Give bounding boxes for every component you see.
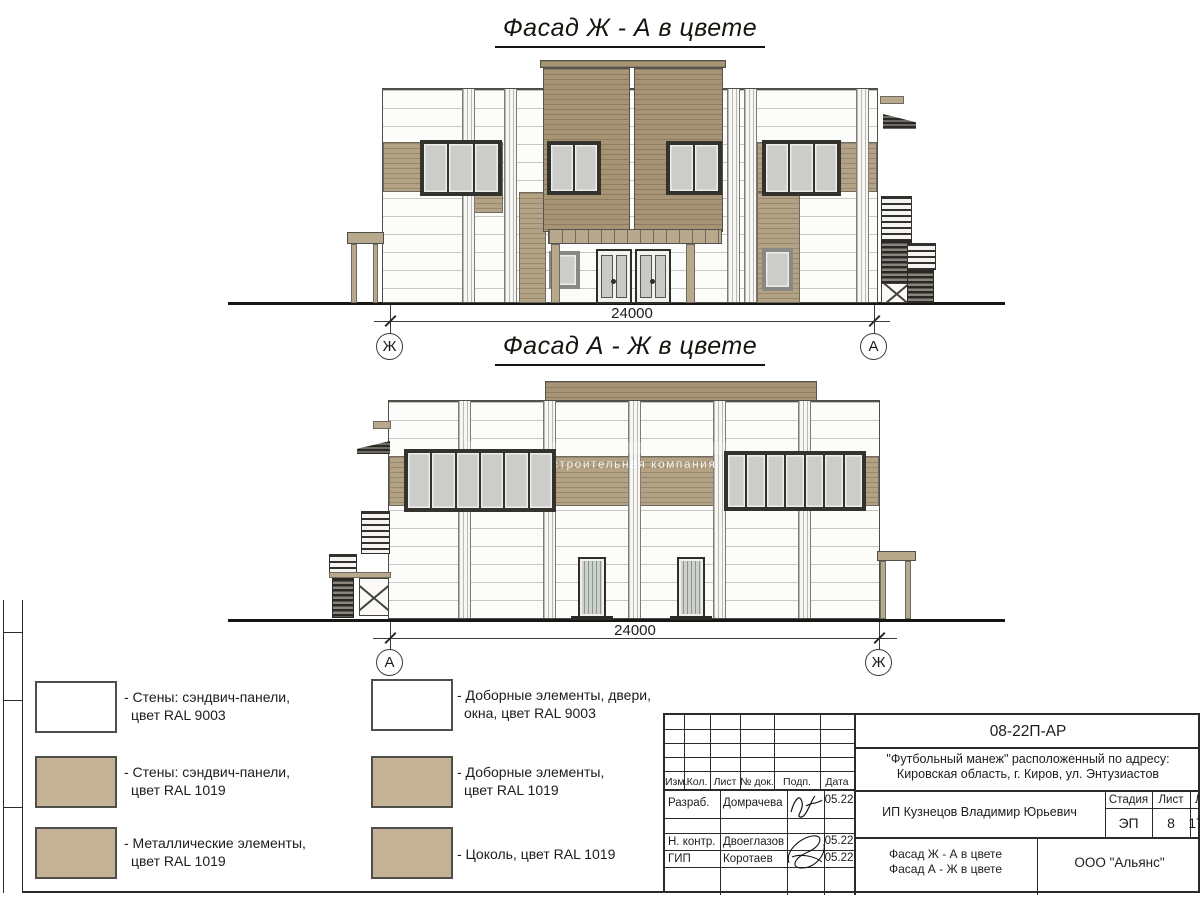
door-leaf: [640, 255, 652, 298]
tb-role: Н. контр.: [668, 836, 715, 848]
roof-ledge: [373, 421, 391, 429]
window-pane: [766, 252, 789, 287]
axis-marker: А: [860, 333, 887, 360]
legend-label: - Стены: сэндвич-панели, цвет RAL 9003: [124, 688, 290, 725]
legend-label: - Стены: сэндвич-панели, цвет RAL 1019: [124, 763, 290, 800]
legend-label-line: - Металлические элементы,: [124, 834, 306, 852]
window-pane: [457, 453, 479, 508]
axis-marker: Ж: [865, 649, 892, 676]
door-leaf: [616, 255, 628, 298]
legend-swatch-ral1019: [35, 756, 117, 808]
facade1-title-text: Фасад Ж - А в цвете: [495, 14, 765, 48]
sheet-frame-line: [3, 600, 4, 893]
tb-col-header: Дата: [820, 776, 854, 788]
sheet-frame-line: [22, 600, 23, 893]
canopy-post: [905, 561, 911, 619]
dimension-label: 24000: [603, 622, 667, 639]
legend-swatch-ral9003: [371, 679, 453, 731]
window-pane: [815, 144, 837, 192]
legend-swatch-ral1019: [371, 827, 453, 879]
small-window: [762, 248, 793, 291]
legend-label-line: - Стены: сэндвич-панели,: [124, 688, 290, 706]
side-canopy-roof: [347, 232, 384, 244]
stair-flight: [332, 578, 354, 618]
legend-swatch-ral1019: [35, 827, 117, 879]
drawing-sheet: Фасад Ж - А в цвете: [0, 0, 1200, 900]
entrance-canopy-band: [548, 229, 722, 244]
stair-canopy: [883, 114, 916, 129]
window-pane: [747, 455, 764, 507]
window-pane: [449, 144, 472, 192]
title-block-line: [854, 747, 1200, 749]
legend-label-line: цвет RAL 9003: [124, 706, 290, 724]
window-pane: [670, 145, 693, 191]
panel-joint-strip: [628, 401, 641, 618]
tb-project-line2: Кировская область, г. Киров, ул. Энтузиа…: [854, 767, 1200, 781]
door-threshold: [571, 616, 613, 620]
signature: [783, 829, 827, 871]
single-door: [677, 557, 705, 618]
title-block-line: [665, 729, 854, 730]
window-pane: [786, 455, 803, 507]
window-pane: [806, 455, 823, 507]
panel-joint-strip: [727, 89, 740, 302]
facade1-parapet-cap: [540, 60, 726, 68]
entrance-column: [551, 244, 560, 303]
window-pane: [825, 455, 842, 507]
single-door: [578, 557, 606, 618]
tb-role: ГИП: [668, 853, 691, 865]
window-pane: [695, 145, 718, 191]
legend-label: - Цоколь, цвет RAL 1019: [457, 845, 615, 863]
tb-stage-label: Стадия: [1105, 794, 1152, 806]
tb-col-header: Кол.: [684, 776, 710, 788]
window-pane: [575, 145, 597, 191]
entrance-double-door: [635, 249, 671, 304]
watermark-wordmark: [552, 442, 737, 454]
axis-marker: А: [376, 649, 403, 676]
tb-sheets-value: 17: [1181, 815, 1200, 831]
facade1-tan-pilaster-left: [519, 192, 546, 303]
dimension-label: 24000: [600, 305, 664, 322]
window-ribbon: [724, 451, 866, 511]
door-leaf: [601, 255, 613, 298]
title-block-line: [665, 789, 854, 791]
window: [666, 141, 722, 195]
door-leaf: [655, 255, 667, 298]
sheet-frame-line: [3, 807, 22, 808]
window-pane: [790, 144, 812, 192]
legend-swatch-ral1019: [371, 756, 453, 808]
legend-label-line: цвет RAL 1019: [457, 781, 604, 799]
side-canopy-roof: [877, 551, 916, 561]
title-block-line: [854, 837, 1200, 839]
window: [420, 140, 502, 196]
tb-sheet-label: Лист: [1152, 794, 1190, 806]
window-pane: [481, 453, 503, 508]
sheet-frame-line: [3, 700, 22, 701]
tb-sheets-label: Листов: [1195, 794, 1200, 806]
legend-label: - Металлические элементы, цвет RAL 1019: [124, 834, 306, 871]
sheet-frame-line: [3, 632, 22, 633]
tb-col-header: Подп.: [774, 776, 820, 788]
tb-date: 05.22: [824, 852, 854, 864]
title-block-line: [1105, 808, 1200, 809]
legend-label: - Доборные элементы, двери, окна, цвет R…: [457, 686, 651, 723]
window-pane: [551, 145, 573, 191]
facade2-title: Фасад А - Ж в цвете: [420, 332, 840, 366]
canopy-post: [373, 244, 378, 303]
tb-client: ИП Кузнецов Владимир Юрьевич: [854, 805, 1105, 819]
tb-date: 05.22: [824, 794, 854, 806]
tb-col-header: № док.: [740, 776, 774, 788]
window: [762, 140, 841, 196]
facade2-title-text: Фасад А - Ж в цвете: [495, 332, 765, 366]
legend-label-line: - Доборные элементы,: [457, 763, 604, 781]
window-pane: [505, 453, 527, 508]
tb-sheet-title-line1: Фасад Ж - А в цвете: [854, 847, 1037, 861]
tb-role: Разраб.: [668, 797, 709, 809]
tb-sheet-title-line2: Фасад А - Ж в цвете: [854, 862, 1037, 876]
stair-railing: [361, 511, 390, 554]
tb-col-header: Изм.: [665, 776, 684, 788]
panel-joint-strip: [744, 89, 757, 302]
stair-railing: [881, 196, 912, 240]
title-block: Изм. Кол. Лист № док. Подп. Дата Разраб.…: [663, 713, 1200, 893]
watermark-text: строительная компания: [552, 457, 752, 471]
title-block-line: [665, 818, 854, 819]
legend-swatch-ral9003: [35, 681, 117, 733]
window-pane: [728, 455, 745, 507]
panel-joint-strip: [856, 89, 869, 302]
entrance-column: [686, 244, 695, 303]
window-pane: [767, 455, 784, 507]
window-pane: [475, 144, 498, 192]
title-block-line: [665, 771, 854, 772]
legend-label-line: - Доборные элементы, двери,: [457, 686, 651, 704]
legend-label-line: цвет RAL 1019: [124, 781, 290, 799]
window-pane: [424, 144, 447, 192]
facade2-parapet: [545, 381, 817, 401]
title-block-line: [720, 789, 721, 895]
canopy-post: [351, 244, 357, 303]
tb-col-header: Лист: [710, 776, 740, 788]
tb-stage-value: ЭП: [1105, 815, 1152, 831]
door-threshold: [670, 616, 712, 620]
window-ribbon: [404, 449, 556, 512]
stair-canopy: [357, 441, 390, 454]
window-pane: [408, 453, 430, 508]
title-block-line: [665, 757, 854, 758]
tb-company: ООО "Альянс": [1037, 855, 1200, 870]
axis-marker: Ж: [376, 333, 403, 360]
window-pane: [530, 453, 552, 508]
tb-name: Коротаев: [723, 853, 773, 865]
title-block-line: [854, 790, 1200, 792]
tb-date: 05.22: [824, 835, 854, 847]
stair-flight: [907, 270, 934, 303]
tb-name: Домрачева: [723, 797, 783, 809]
signature: [787, 791, 824, 818]
tb-project-line1: "Футбольный манеж" расположенный по адре…: [854, 752, 1200, 766]
legend-label: - Доборные элементы, цвет RAL 1019: [457, 763, 604, 800]
tb-name: Двоеглазов: [723, 836, 784, 848]
facade1-title: Фасад Ж - А в цвете: [400, 14, 860, 48]
roof-ledge: [880, 96, 904, 104]
entrance-double-door: [596, 249, 632, 304]
window-pane: [766, 144, 788, 192]
window: [547, 141, 601, 195]
canopy-post: [880, 561, 886, 619]
stair-cross-brace: [359, 578, 389, 616]
title-block-line: [665, 743, 854, 744]
stair-railing: [907, 243, 936, 270]
window-pane: [432, 453, 454, 508]
legend-label-line: - Стены: сэндвич-панели,: [124, 763, 290, 781]
legend-label-line: окна, цвет RAL 9003: [457, 704, 651, 722]
window-pane: [845, 455, 862, 507]
tb-doc-number: 08-22П-АР: [854, 723, 1200, 741]
legend-label-line: - Цоколь, цвет RAL 1019: [457, 845, 615, 863]
legend-label-line: цвет RAL 1019: [124, 852, 306, 870]
panel-joint-strip: [504, 89, 517, 302]
